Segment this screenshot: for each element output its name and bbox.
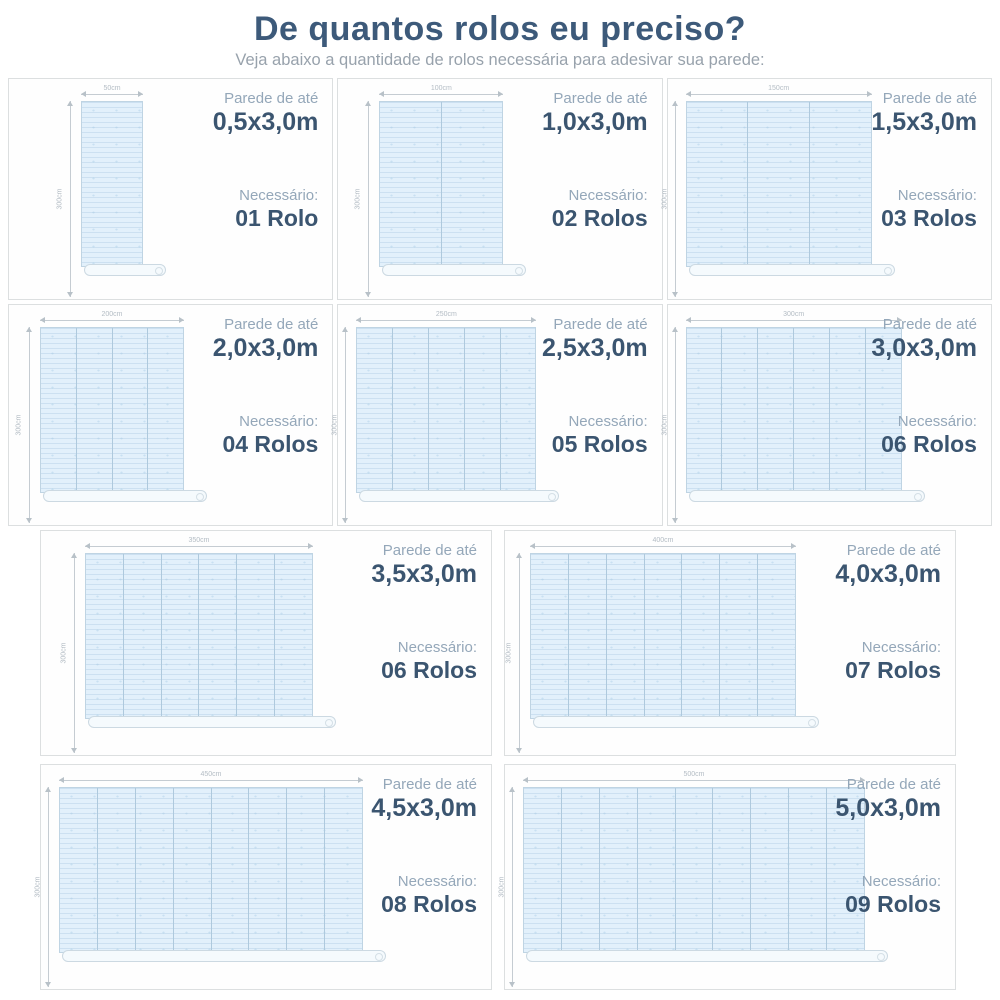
wall-size-value: 1,5x3,0m: [817, 108, 977, 136]
wallpaper-strip: [748, 102, 810, 266]
wall-size-value: 5,0x3,0m: [781, 794, 941, 822]
height-dimension-label: 300cm: [61, 642, 68, 663]
panel-info: Parede de até 4,0x3,0m Necessário: 07 Ro…: [781, 541, 941, 684]
rolls-needed-block: Necessário: 06 Rolos: [317, 638, 477, 684]
wallpaper-roll: [689, 490, 925, 502]
wallpaper-roll: [43, 490, 207, 502]
height-dimension-label: 300cm: [35, 876, 42, 897]
wall-panel: 500cm 300cm Parede de até 5,0x3,0m Neces…: [504, 764, 956, 990]
rolls-needed-value: 09 Rolos: [781, 891, 941, 918]
width-dimension-label: 350cm: [85, 537, 313, 545]
wall-figure: 50cm 300cm: [81, 89, 143, 289]
wall-surface: [85, 553, 313, 719]
rolls-needed-prefix: Necessário:: [781, 872, 941, 891]
height-dimension-arrow: 300cm: [368, 101, 369, 297]
rolls-needed-prefix: Necessário:: [488, 186, 648, 205]
rolls-needed-value: 07 Rolos: [781, 657, 941, 684]
panel-info: Parede de até 0,5x3,0m Necessário: 01 Ro…: [158, 89, 318, 232]
height-dimension-arrow: 300cm: [74, 553, 75, 753]
wall-size-value: 0,5x3,0m: [158, 108, 318, 136]
rolls-needed-block: Necessário: 06 Rolos: [817, 412, 977, 458]
rolls-needed-block: Necessário: 02 Rolos: [488, 186, 648, 232]
wallpaper-strip: [136, 788, 174, 952]
wallpaper-strip: [393, 328, 429, 492]
wall-diagram: 400cm 300cm: [515, 541, 805, 745]
wallpaper-strip: [569, 554, 607, 718]
wallpaper-strip: [713, 788, 751, 952]
wall-figure: 100cm 300cm: [379, 89, 503, 289]
rolls-needed-value: 03 Rolos: [817, 205, 977, 232]
wallpaper-strip: [41, 328, 77, 492]
height-dimension-label: 300cm: [661, 414, 668, 435]
wallpaper-strip: [199, 554, 237, 718]
wall-size-prefix: Parede de até: [781, 775, 941, 794]
wall-size-value: 4,0x3,0m: [781, 560, 941, 588]
wall-figure: 350cm 300cm: [85, 541, 313, 745]
rolls-needed-prefix: Necessário:: [817, 186, 977, 205]
height-dimension-label: 300cm: [506, 642, 513, 663]
wallpaper-strip: [98, 788, 136, 952]
wall-size-prefix: Parede de até: [488, 89, 648, 108]
wall-panel: 350cm 300cm Parede de até 3,5x3,0m Neces…: [40, 530, 492, 756]
wallpaper-strip: [600, 788, 638, 952]
panel-row-3: 350cm 300cm Parede de até 3,5x3,0m Neces…: [0, 530, 1000, 756]
wallpaper-roll: [382, 264, 526, 276]
wallpaper-strip: [237, 554, 275, 718]
wallpaper-strip: [645, 554, 683, 718]
wall-panel: 400cm 300cm Parede de até 4,0x3,0m Neces…: [504, 530, 956, 756]
height-dimension-arrow: 300cm: [675, 101, 676, 297]
rolls-needed-prefix: Necessário:: [317, 638, 477, 657]
header: De quantos rolos eu preciso? Veja abaixo…: [0, 0, 1000, 70]
wall-size-prefix: Parede de até: [317, 541, 477, 560]
wall-panel: 50cm 300cm Parede de até 0,5x3,0m Necess…: [8, 78, 333, 300]
panel-info: Parede de até 3,5x3,0m Necessário: 06 Ro…: [317, 541, 477, 684]
wallpaper-strip: [524, 788, 562, 952]
wall-surface: [379, 101, 503, 267]
wall-panel: 300cm 300cm Parede de até 3,0x3,0m Neces…: [667, 304, 992, 526]
wallpaper-strip: [687, 102, 749, 266]
wall-size-value: 3,5x3,0m: [317, 560, 477, 588]
rolls-needed-block: Necessário: 04 Rolos: [158, 412, 318, 458]
wallpaper-roll: [526, 950, 888, 962]
wallpaper-strip: [357, 328, 393, 492]
rolls-needed-block: Necessário: 08 Rolos: [317, 872, 477, 918]
width-dimension-arrow: 100cm: [379, 94, 503, 95]
wall-size-block: Parede de até 2,5x3,0m: [488, 315, 648, 362]
width-dimension-arrow: 50cm: [81, 94, 143, 95]
panel-info: Parede de até 4,5x3,0m Necessário: 08 Ro…: [317, 775, 477, 918]
page-title: De quantos rolos eu preciso?: [0, 10, 1000, 49]
wallpaper-roll: [88, 716, 336, 728]
wallpaper-strip: [275, 554, 312, 718]
wallpaper-strip: [638, 788, 676, 952]
wall-diagram: 500cm 300cm: [515, 775, 805, 979]
width-dimension-arrow: 400cm: [530, 546, 796, 547]
wall-diagram: 350cm 300cm: [51, 541, 341, 745]
rolls-needed-prefix: Necessário:: [817, 412, 977, 431]
height-dimension-label: 300cm: [661, 188, 668, 209]
wall-size-prefix: Parede de até: [817, 89, 977, 108]
wall-surface: [81, 101, 143, 267]
wall-size-block: Parede de até 4,0x3,0m: [781, 541, 941, 588]
wall-size-block: Parede de até 5,0x3,0m: [781, 775, 941, 822]
rolls-needed-block: Necessário: 09 Rolos: [781, 872, 941, 918]
wall-diagram: 450cm 300cm: [51, 775, 341, 979]
panel-info: Parede de até 1,5x3,0m Necessário: 03 Ro…: [817, 89, 977, 232]
wall-size-block: Parede de até 2,0x3,0m: [158, 315, 318, 362]
rolls-needed-value: 08 Rolos: [317, 891, 477, 918]
wall-size-prefix: Parede de até: [781, 541, 941, 560]
rolls-needed-value: 06 Rolos: [317, 657, 477, 684]
height-dimension-label: 300cm: [499, 876, 506, 897]
page-subtitle: Veja abaixo a quantidade de rolos necess…: [0, 51, 1000, 70]
wall-size-block: Parede de até 1,5x3,0m: [817, 89, 977, 136]
panel-row-4: 450cm 300cm Parede de até 4,5x3,0m Neces…: [0, 764, 1000, 990]
panels-grid: 50cm 300cm Parede de até 0,5x3,0m Necess…: [0, 78, 1000, 990]
width-dimension-arrow: 350cm: [85, 546, 313, 547]
height-dimension-arrow: 300cm: [29, 327, 30, 523]
rolls-needed-prefix: Necessário:: [158, 412, 318, 431]
wall-size-block: Parede de até 0,5x3,0m: [158, 89, 318, 136]
height-dimension-arrow: 300cm: [70, 101, 71, 297]
height-dimension-arrow: 300cm: [48, 787, 49, 987]
panel-row-1: 50cm 300cm Parede de até 0,5x3,0m Necess…: [0, 78, 1000, 300]
panel-info: Parede de até 2,0x3,0m Necessário: 04 Ro…: [158, 315, 318, 458]
wall-size-block: Parede de até 3,0x3,0m: [817, 315, 977, 362]
rolls-needed-value: 05 Rolos: [488, 431, 648, 458]
wallpaper-strip: [249, 788, 287, 952]
width-dimension-label: 50cm: [81, 85, 143, 93]
rolls-needed-block: Necessário: 03 Rolos: [817, 186, 977, 232]
wall-size-value: 2,0x3,0m: [158, 334, 318, 362]
wallpaper-strip: [77, 328, 113, 492]
height-dimension-arrow: 300cm: [345, 327, 346, 523]
wallpaper-strip: [720, 554, 758, 718]
rolls-needed-value: 04 Rolos: [158, 431, 318, 458]
rolls-needed-value: 01 Rolo: [158, 205, 318, 232]
wall-size-block: Parede de até 4,5x3,0m: [317, 775, 477, 822]
wallpaper-strip: [380, 102, 442, 266]
wallpaper-roll: [533, 716, 819, 728]
rolls-needed-prefix: Necessário:: [158, 186, 318, 205]
wallpaper-strip: [113, 328, 149, 492]
wall-panel: 450cm 300cm Parede de até 4,5x3,0m Neces…: [40, 764, 492, 990]
wall-size-value: 4,5x3,0m: [317, 794, 477, 822]
width-dimension-label: 100cm: [379, 85, 503, 93]
wall-size-block: Parede de até 1,0x3,0m: [488, 89, 648, 136]
wallpaper-strip: [124, 554, 162, 718]
wall-size-prefix: Parede de até: [817, 315, 977, 334]
wallpaper-strip: [562, 788, 600, 952]
rolls-needed-block: Necessário: 05 Rolos: [488, 412, 648, 458]
wallpaper-strip: [429, 328, 465, 492]
rolls-needed-prefix: Necessário:: [488, 412, 648, 431]
rolls-needed-prefix: Necessário:: [317, 872, 477, 891]
wallpaper-roll: [359, 490, 559, 502]
wallpaper-strip: [722, 328, 758, 492]
height-dimension-arrow: 300cm: [519, 553, 520, 753]
panel-info: Parede de até 3,0x3,0m Necessário: 06 Ro…: [817, 315, 977, 458]
wallpaper-strip: [86, 554, 124, 718]
wall-size-value: 3,0x3,0m: [817, 334, 977, 362]
wall-figure: 400cm 300cm: [530, 541, 796, 745]
wall-panel: 250cm 300cm Parede de até 2,5x3,0m Neces…: [337, 304, 662, 526]
wallpaper-strip: [82, 102, 142, 266]
wallpaper-strip: [212, 788, 250, 952]
wall-size-value: 1,0x3,0m: [488, 108, 648, 136]
rolls-needed-block: Necessário: 07 Rolos: [781, 638, 941, 684]
height-dimension-label: 300cm: [16, 414, 23, 435]
panel-row-2: 200cm 300cm Parede de até 2,0x3,0m Neces…: [0, 304, 1000, 526]
height-dimension-arrow: 300cm: [675, 327, 676, 523]
width-dimension-label: 400cm: [530, 537, 796, 545]
wallpaper-roll: [62, 950, 386, 962]
wallpaper-strip: [682, 554, 720, 718]
height-dimension-label: 300cm: [355, 188, 362, 209]
panel-info: Parede de até 1,0x3,0m Necessário: 02 Ro…: [488, 89, 648, 232]
panel-info: Parede de até 2,5x3,0m Necessário: 05 Ro…: [488, 315, 648, 458]
rolls-needed-value: 06 Rolos: [817, 431, 977, 458]
wall-size-prefix: Parede de até: [158, 89, 318, 108]
wall-size-prefix: Parede de até: [488, 315, 648, 334]
wall-surface: [530, 553, 796, 719]
wall-panel: 150cm 300cm Parede de até 1,5x3,0m Neces…: [667, 78, 992, 300]
wall-size-block: Parede de até 3,5x3,0m: [317, 541, 477, 588]
height-dimension-label: 300cm: [57, 188, 64, 209]
wallpaper-strip: [162, 554, 200, 718]
wallpaper-strip: [676, 788, 714, 952]
height-dimension-label: 300cm: [332, 414, 339, 435]
rolls-needed-block: Necessário: 01 Rolo: [158, 186, 318, 232]
wallpaper-strip: [687, 328, 723, 492]
height-dimension-arrow: 300cm: [512, 787, 513, 987]
wall-panel: 200cm 300cm Parede de até 2,0x3,0m Neces…: [8, 304, 333, 526]
wall-panel: 100cm 300cm Parede de até 1,0x3,0m Neces…: [337, 78, 662, 300]
wall-size-prefix: Parede de até: [158, 315, 318, 334]
wallpaper-roll: [84, 264, 166, 276]
wallpaper-strip: [607, 554, 645, 718]
rolls-needed-value: 02 Rolos: [488, 205, 648, 232]
wall-size-value: 2,5x3,0m: [488, 334, 648, 362]
panel-info: Parede de até 5,0x3,0m Necessário: 09 Ro…: [781, 775, 941, 918]
wallpaper-strip: [174, 788, 212, 952]
wallpaper-strip: [60, 788, 98, 952]
wall-size-prefix: Parede de até: [317, 775, 477, 794]
wallpaper-strip: [531, 554, 569, 718]
wallpaper-strip: [758, 328, 794, 492]
wallpaper-roll: [689, 264, 895, 276]
rolls-needed-prefix: Necessário:: [781, 638, 941, 657]
